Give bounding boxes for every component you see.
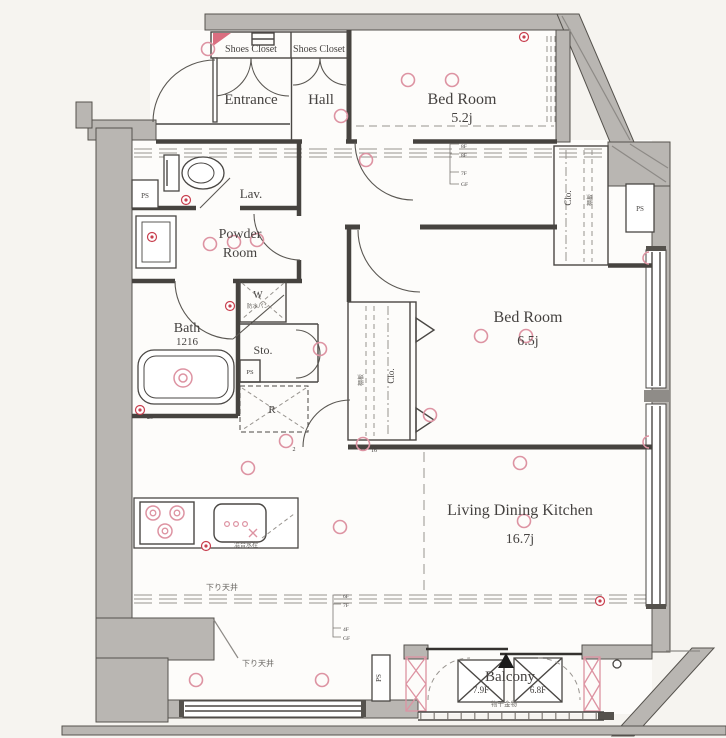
floor-ref: 4F	[343, 627, 349, 633]
outlet-icon	[598, 599, 601, 602]
floor-ref: GF	[461, 182, 468, 188]
floor-ref: GF	[343, 636, 350, 642]
bath-size: 1216	[176, 336, 199, 348]
floor-ref: 7F	[343, 603, 349, 609]
ps1-label: PS	[141, 192, 149, 200]
outlet-icon	[150, 235, 153, 238]
ac-unit-2-label: 6.8F	[530, 685, 546, 695]
outlet-icon	[522, 35, 525, 38]
outlet-icon	[228, 304, 231, 307]
floor-plan-page: 222016 Shoes Closet Shoes Closet Entranc…	[0, 0, 726, 738]
bathtub	[138, 350, 234, 404]
floor-ref: 6F	[343, 594, 349, 600]
ldk-window	[646, 404, 666, 609]
drain-icon	[613, 660, 621, 668]
ps3-label: PS	[636, 205, 644, 213]
ps2-label: PS	[246, 369, 254, 376]
floor-ref: 8F	[461, 144, 467, 150]
shoes-closet-1-label: Shoes Closet	[225, 44, 277, 55]
entrance-label: Entrance	[224, 92, 278, 108]
powder-room-label-1: Powder	[219, 227, 262, 242]
toilet	[164, 155, 224, 191]
washer-label: W	[253, 290, 263, 301]
closet-br2-label: Clo.	[386, 368, 396, 383]
circuit-number: 2	[293, 447, 296, 453]
bedroom2-label: Bed Room	[494, 309, 563, 326]
bath-label: Bath	[174, 321, 200, 336]
outlet-icon	[184, 198, 187, 201]
floor-ref: 7F	[461, 171, 467, 177]
ldk-size: 16.7j	[506, 532, 534, 547]
closet-tr-label: Clo.	[563, 190, 573, 205]
hall-label: Hall	[308, 92, 334, 108]
shelf-br2-label: 棚板	[357, 374, 365, 386]
circuit-number: 16	[371, 448, 377, 454]
shoes-closet-2-label: Shoes Closet	[293, 44, 345, 55]
shelf-tr-label: 棚板	[586, 194, 594, 206]
ldk-label: Living Dining Kitchen	[447, 502, 593, 519]
bedroom2-size: 6.5j	[517, 334, 538, 349]
bedroom1-label: Bed Room	[428, 91, 497, 108]
storage-label: Sto.	[253, 343, 272, 357]
balcony-label: Balcony	[485, 669, 535, 685]
bedroom1-size: 5.2j	[451, 111, 472, 126]
lowered-ceiling-2-label: 下り天井	[242, 658, 274, 668]
ac-unit-1-label: 7.9F	[473, 685, 489, 695]
outlet-icon	[138, 408, 141, 411]
fridge-label: R	[268, 404, 276, 416]
kitchen-counter	[134, 498, 298, 548]
floor-plan-drawing: 222016 Shoes Closet Shoes Closet Entranc…	[0, 0, 726, 738]
ldk-south-window	[179, 700, 366, 717]
outlet-icon	[204, 544, 207, 547]
lavatory-label: Lav.	[240, 186, 263, 201]
wash-basin	[136, 216, 176, 268]
washer-sub-label: 防水パン	[247, 302, 270, 310]
laundry-hardware-label: 物干金物	[491, 699, 518, 708]
lowered-ceiling-1-label: 下り天井	[206, 582, 238, 592]
ps4-label: PS	[375, 674, 383, 682]
floor-ref: 8F	[461, 153, 467, 159]
kitchen-sub-label: 混合水栓	[234, 541, 258, 549]
circuit-number: 20	[147, 415, 153, 421]
circuit-number: 2	[349, 106, 352, 112]
powder-room-label-2: Room	[223, 246, 257, 261]
